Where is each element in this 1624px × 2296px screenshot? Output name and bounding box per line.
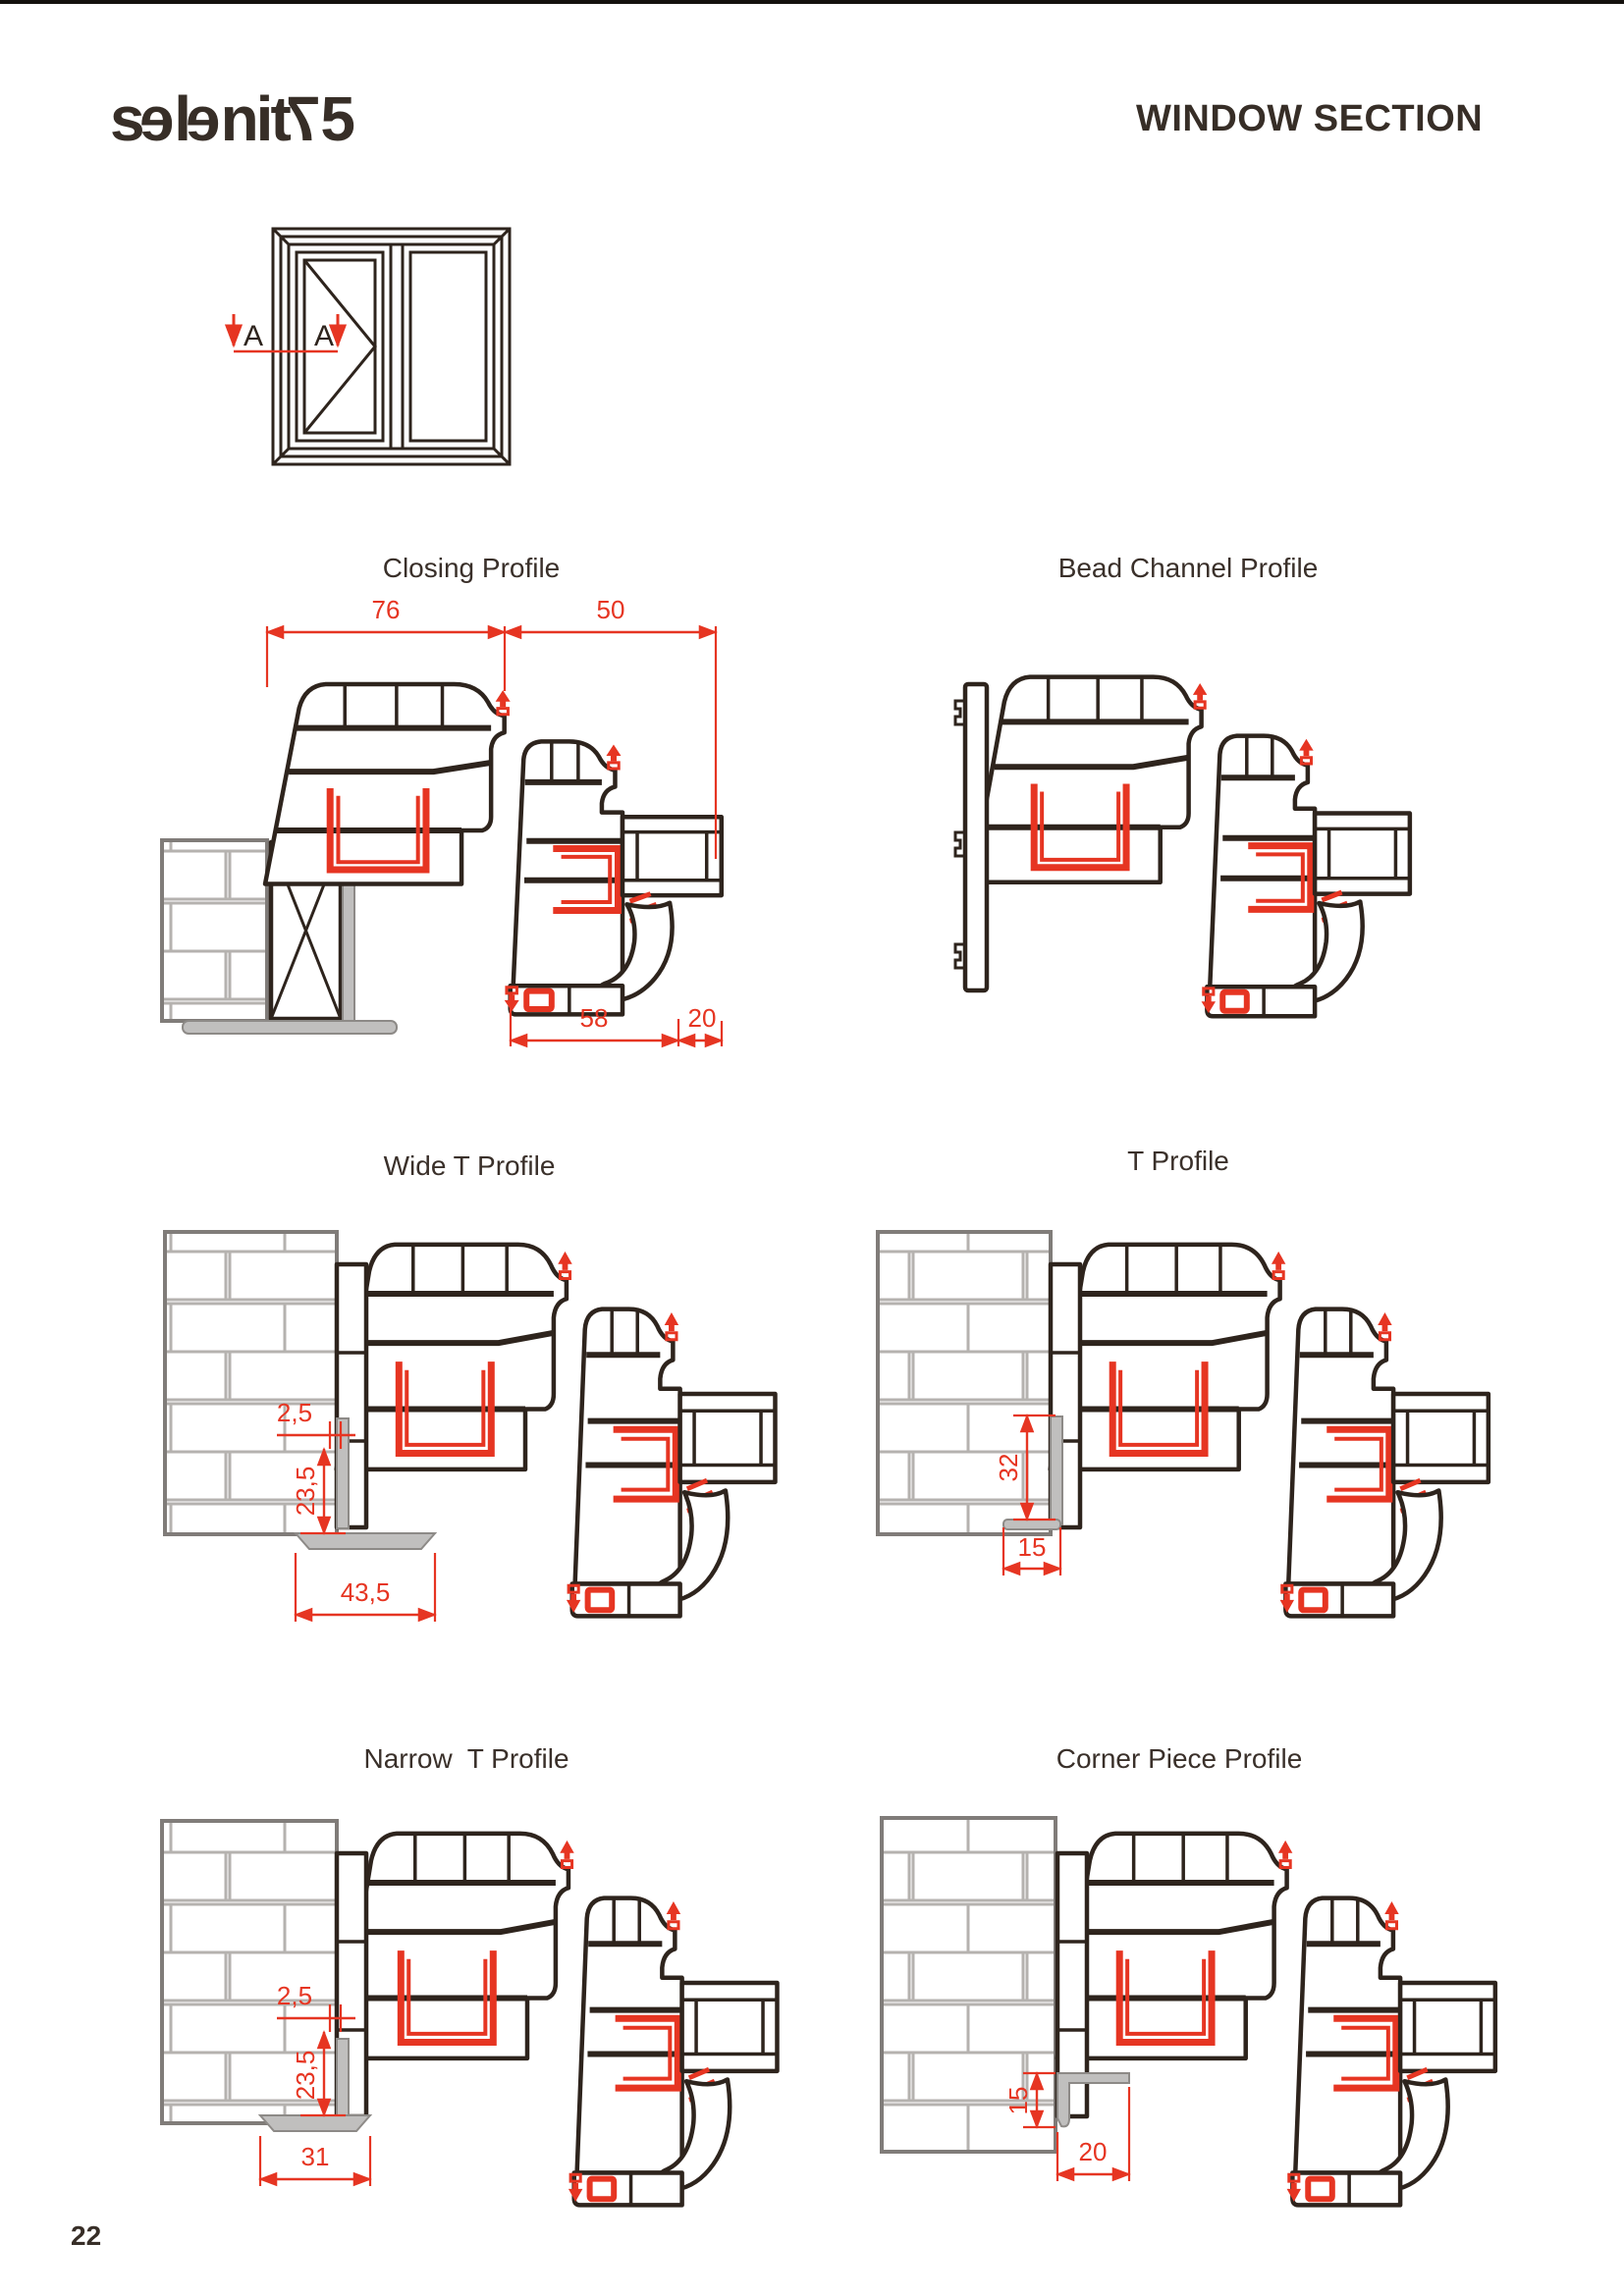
panel-title-t: T Profile — [1127, 1146, 1229, 1177]
brick-wall — [878, 1232, 1051, 1534]
catalog-page: selenit75 WINDOW SECTION — [0, 0, 1624, 2296]
section-label-left: A — [244, 320, 263, 352]
svg-text:15: 15 — [1018, 1532, 1047, 1562]
sill-shadow — [183, 1021, 397, 1034]
section-cut-marker: A A — [234, 314, 338, 352]
svg-text:20: 20 — [688, 1003, 717, 1033]
svg-text:2,5: 2,5 — [277, 1398, 312, 1427]
section-label-right: A — [314, 320, 334, 352]
svg-text:76: 76 — [372, 595, 401, 624]
svg-text:15: 15 — [1003, 2087, 1033, 2115]
panel-title-corner: Corner Piece Profile — [1056, 1743, 1303, 1775]
bead-channel-profile-drawing — [955, 677, 1410, 1017]
svg-text:32: 32 — [994, 1454, 1023, 1482]
svg-text:43,5: 43,5 — [341, 1577, 391, 1607]
svg-text:23,5: 23,5 — [291, 2051, 320, 2101]
drawings-canvas: A A 76 50 — [0, 0, 1624, 2296]
wide-t-profile-drawing: 2,5 23,5 43,5 — [165, 1232, 775, 1622]
corner-piece-part — [1057, 2073, 1129, 2126]
closing-profile-drawing: 76 50 58 20 — [162, 595, 722, 1046]
svg-text:50: 50 — [597, 595, 625, 624]
narrow-t-profile-drawing: 2,5 23,5 31 — [162, 1821, 777, 2205]
t-profile-drawing: 32 15 — [878, 1232, 1489, 1616]
svg-text:58: 58 — [580, 1003, 609, 1033]
svg-text:31: 31 — [301, 2142, 330, 2171]
panel-title-narrow-t: Narrow T Profile — [363, 1743, 568, 1775]
bead-channel-edge — [955, 684, 987, 990]
page-number: 22 — [71, 2220, 101, 2252]
panel-title-wide-t: Wide T Profile — [384, 1150, 556, 1182]
svg-text:20: 20 — [1079, 2137, 1108, 2166]
corner-piece-profile-drawing: 15 20 — [882, 1818, 1495, 2205]
panel-title-closing: Closing Profile — [383, 553, 561, 584]
brick-wall — [162, 840, 267, 1021]
svg-text:2,5: 2,5 — [277, 1981, 312, 2010]
svg-text:23,5: 23,5 — [291, 1467, 320, 1517]
panel-title-bead-channel: Bead Channel Profile — [1058, 553, 1319, 584]
window-elevation-diagram: A A — [234, 229, 510, 464]
